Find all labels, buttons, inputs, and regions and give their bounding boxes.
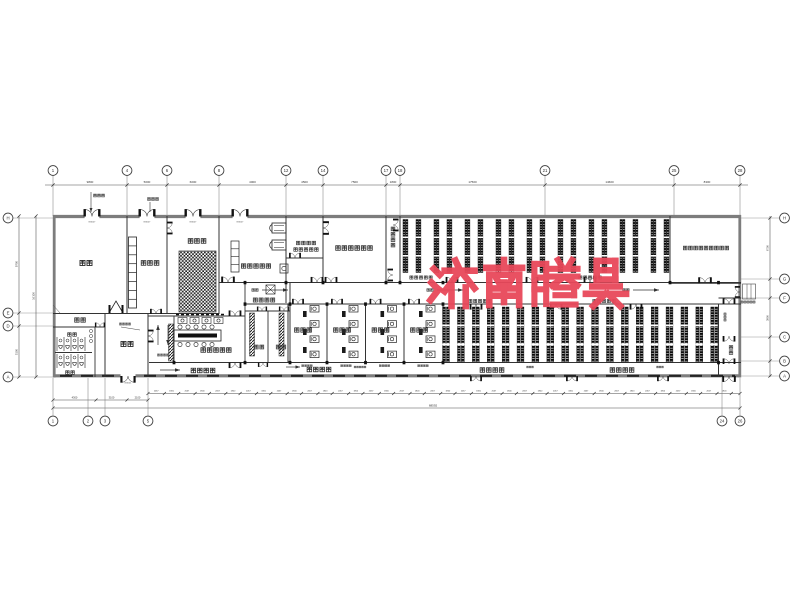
- svg-text:68592: 68592: [429, 403, 438, 407]
- svg-text:28: 28: [738, 168, 743, 173]
- svg-text:A: A: [783, 374, 786, 379]
- svg-text:H: H: [6, 216, 9, 221]
- svg-text:3100: 3100: [109, 395, 115, 399]
- svg-text:2: 2: [348, 328, 351, 333]
- svg-text:5100: 5100: [15, 348, 19, 355]
- svg-text:6000: 6000: [190, 180, 197, 184]
- svg-text:2100: 2100: [135, 395, 141, 399]
- svg-text:4000: 4000: [249, 180, 256, 184]
- svg-text:18: 18: [398, 168, 403, 173]
- svg-text:17: 17: [384, 168, 389, 173]
- svg-text:26: 26: [738, 419, 743, 424]
- svg-text:M1521: M1521: [125, 383, 132, 385]
- svg-text:E: E: [7, 311, 10, 316]
- svg-text:M1527: M1527: [144, 222, 151, 224]
- svg-text:12: 12: [284, 168, 289, 173]
- svg-text:H: H: [783, 216, 786, 221]
- svg-text:3: 3: [387, 328, 390, 333]
- svg-text:F: F: [783, 296, 786, 301]
- svg-text:M1527: M1527: [89, 222, 96, 224]
- svg-text:4500: 4500: [301, 180, 308, 184]
- svg-text:9700: 9700: [15, 260, 19, 267]
- svg-text:4: 4: [425, 328, 428, 333]
- svg-text:1800: 1800: [390, 180, 397, 184]
- svg-text:25: 25: [672, 168, 677, 173]
- svg-text:17500: 17500: [468, 180, 477, 184]
- svg-text:5000: 5000: [144, 180, 151, 184]
- svg-text:D: D: [6, 324, 9, 329]
- svg-text:B: B: [783, 359, 786, 364]
- svg-text:M1527: M1527: [190, 222, 197, 224]
- svg-text:M1527: M1527: [237, 222, 244, 224]
- svg-text:3900: 3900: [766, 315, 770, 321]
- svg-text:9800: 9800: [87, 180, 94, 184]
- svg-text:6700: 6700: [766, 245, 770, 251]
- svg-text:21: 21: [543, 168, 548, 173]
- svg-text:14600: 14600: [605, 180, 614, 184]
- svg-text:1: 1: [309, 328, 312, 333]
- svg-text:A: A: [7, 375, 10, 380]
- svg-text:24: 24: [720, 419, 725, 424]
- svg-text:4300: 4300: [72, 395, 78, 399]
- svg-text:16100: 16100: [32, 292, 36, 300]
- svg-text:7500: 7500: [351, 180, 358, 184]
- svg-text:14: 14: [321, 168, 326, 173]
- svg-text:8300: 8300: [704, 180, 711, 184]
- svg-text:C: C: [783, 335, 786, 340]
